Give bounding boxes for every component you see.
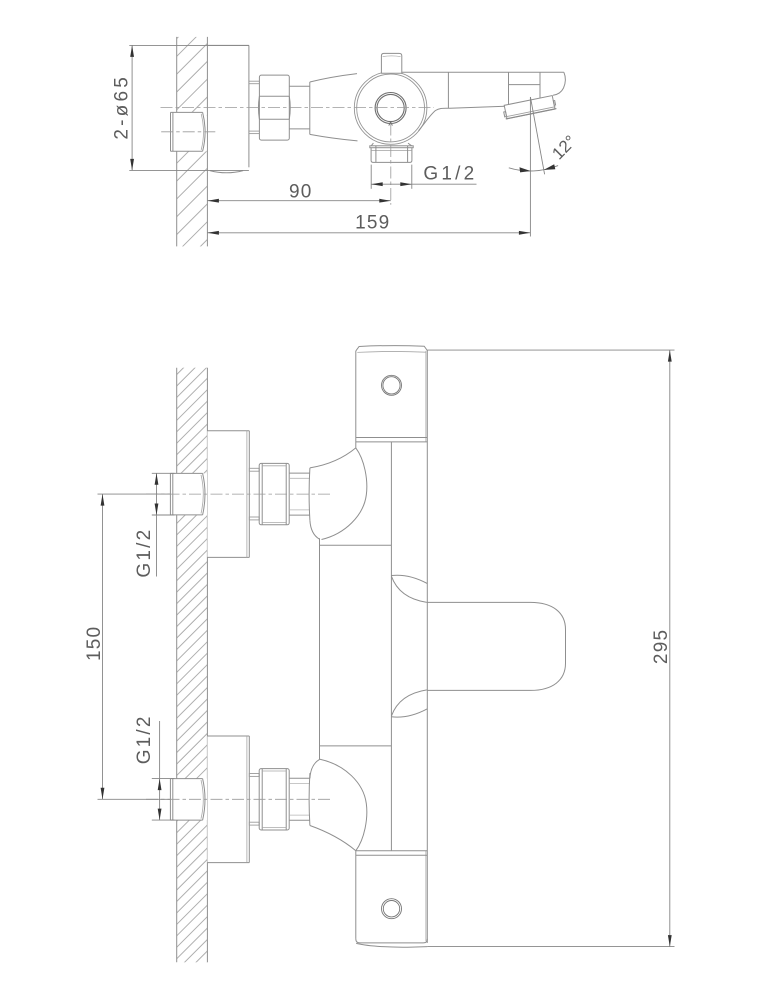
svg-text:12°: 12° (548, 132, 580, 164)
svg-text:90: 90 (289, 182, 313, 203)
svg-text:159: 159 (355, 212, 390, 233)
svg-text:2-ø65: 2-ø65 (111, 74, 132, 140)
svg-text:G1/2: G1/2 (134, 714, 155, 764)
svg-text:295: 295 (651, 629, 672, 664)
svg-text:150: 150 (84, 626, 105, 661)
svg-text:G1/2: G1/2 (134, 528, 155, 578)
svg-text:G1/2: G1/2 (423, 164, 477, 185)
